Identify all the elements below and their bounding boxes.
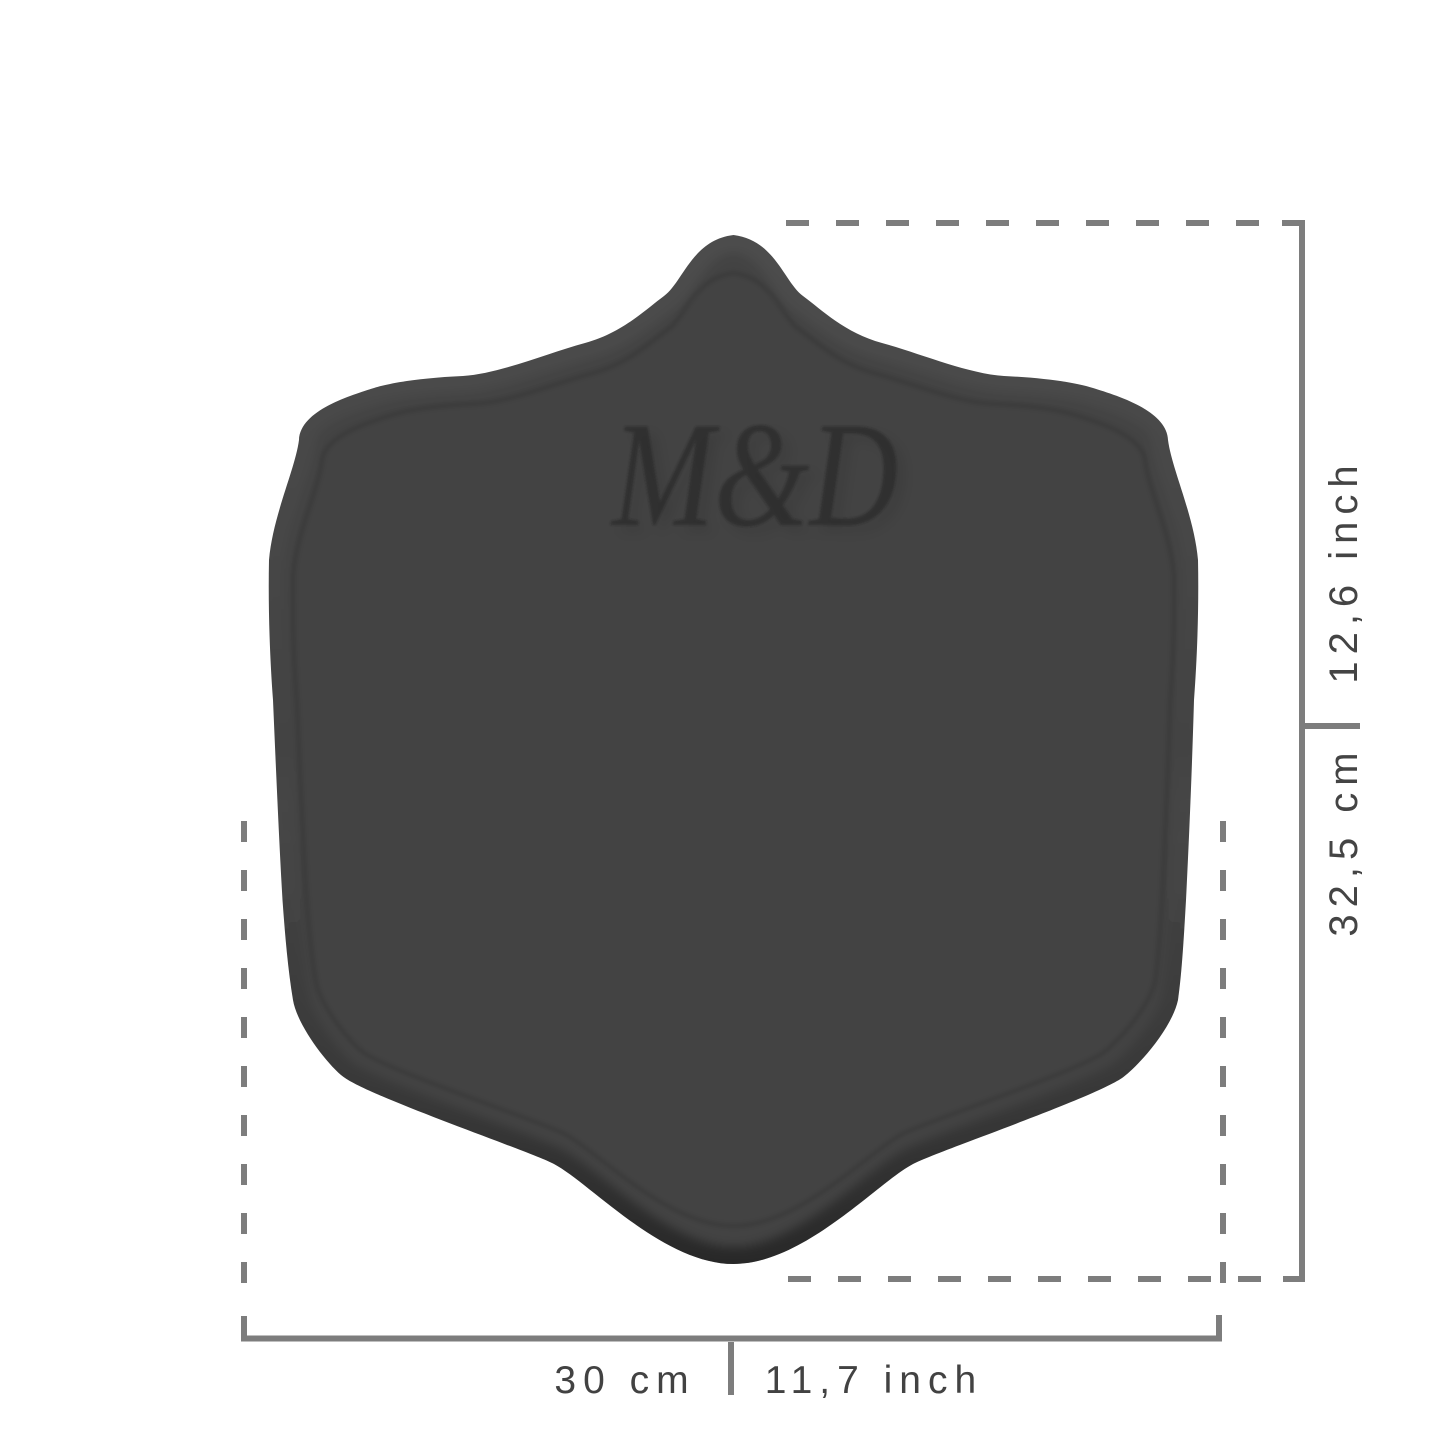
svg-text:12,6 inch: 12,6 inch bbox=[1322, 458, 1366, 683]
svg-text:30 cm: 30 cm bbox=[554, 1359, 695, 1402]
svg-text:M&D: M&D bbox=[610, 392, 898, 558]
svg-text:32,5 cm: 32,5 cm bbox=[1322, 745, 1366, 936]
svg-text:11,7 inch: 11,7 inch bbox=[765, 1359, 983, 1402]
